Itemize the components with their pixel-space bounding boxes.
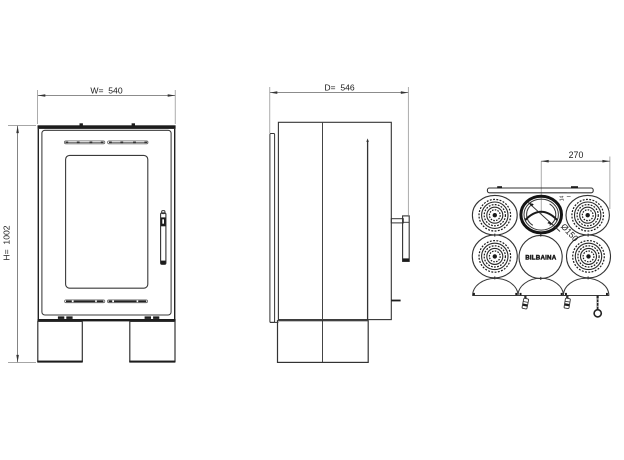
svg-text:270: 270 bbox=[569, 150, 584, 160]
svg-text:D= 546: D= 546 bbox=[324, 83, 355, 93]
svg-text:W= 540: W= 540 bbox=[90, 86, 122, 96]
svg-text:BILBAINA: BILBAINA bbox=[525, 255, 556, 262]
svg-text:H= 1002: H= 1002 bbox=[2, 225, 12, 260]
svg-text:14: 14 bbox=[560, 196, 566, 202]
